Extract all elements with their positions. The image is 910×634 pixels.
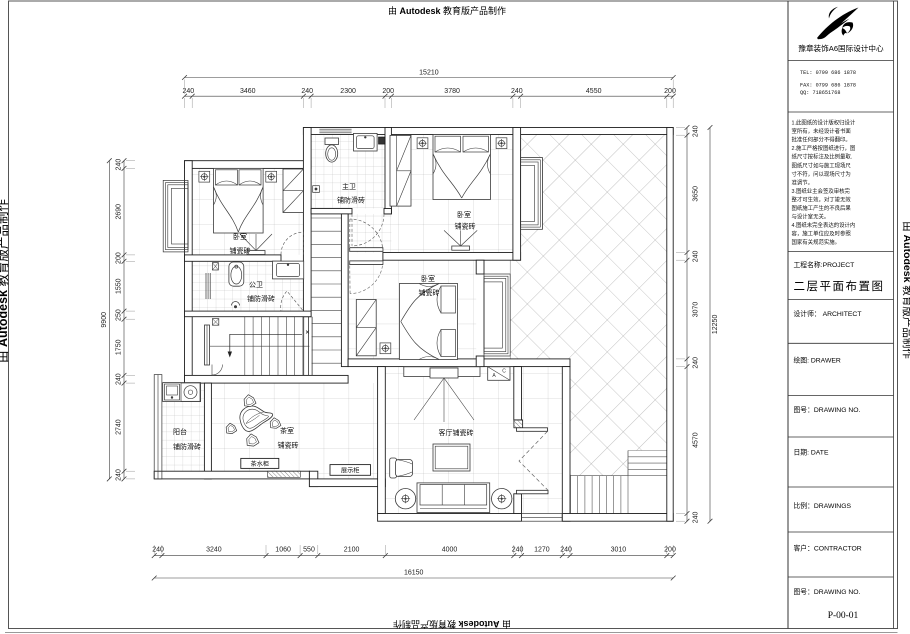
svg-text:阳台: 阳台	[173, 427, 187, 436]
svg-text:4000: 4000	[442, 547, 458, 554]
svg-text:铺瓷砖: 铺瓷砖	[230, 246, 251, 255]
svg-text:1060: 1060	[275, 547, 291, 554]
svg-text:240: 240	[693, 357, 700, 369]
svg-text:设计师： ARCHITECT: 设计师： ARCHITECT	[794, 309, 862, 318]
svg-text:1750: 1750	[116, 339, 123, 355]
svg-text:卧室: 卧室	[421, 274, 435, 283]
svg-text:P-00-01: P-00-01	[828, 611, 859, 621]
svg-text:容，施工单位应及时参照: 容，施工单位应及时参照	[792, 230, 852, 238]
svg-text:茶水柜: 茶水柜	[251, 460, 270, 468]
svg-text:铺瓷砖: 铺瓷砖	[419, 288, 440, 297]
svg-text:客户：CONTRACTOR: 客户：CONTRACTOR	[794, 544, 862, 553]
svg-text:由 Autodesk 教育版产品制作: 由 Autodesk 教育版产品制作	[0, 199, 10, 363]
svg-text:2740: 2740	[116, 419, 123, 435]
svg-text:C: C	[502, 369, 506, 375]
svg-text:工程名称:PROJECT: 工程名称:PROJECT	[794, 260, 855, 269]
svg-text:3240: 3240	[206, 547, 222, 554]
svg-text:图号：DRAWING NO.: 图号：DRAWING NO.	[794, 406, 861, 414]
svg-text:1550: 1550	[116, 278, 123, 294]
svg-text:2300: 2300	[340, 88, 356, 95]
svg-text:日期: DATE: 日期: DATE	[794, 449, 829, 457]
svg-text:1270: 1270	[534, 547, 550, 554]
svg-text:3070: 3070	[693, 302, 700, 318]
svg-text:客厅铺瓷砖: 客厅铺瓷砖	[439, 428, 474, 437]
svg-text:国家有关规范实施。: 国家有关规范实施。	[792, 238, 841, 246]
svg-text:2.施工严格按图纸进行，图: 2.施工严格按图纸进行，图	[792, 144, 856, 152]
svg-text:200: 200	[664, 88, 676, 95]
svg-text:3780: 3780	[444, 88, 460, 95]
svg-text:4.图纸未完全表达的设计内: 4.图纸未完全表达的设计内	[792, 221, 856, 229]
svg-text:240: 240	[512, 547, 524, 554]
svg-text:240: 240	[560, 547, 572, 554]
svg-text:铺瓷砖: 铺瓷砖	[455, 222, 476, 231]
svg-text:1.此图纸的设计版权归设计: 1.此图纸的设计版权归设计	[792, 119, 856, 127]
svg-text:准调节。: 准调节。	[792, 178, 814, 186]
svg-text:由 Autodesk 教育版产品制作: 由 Autodesk 教育版产品制作	[388, 5, 506, 16]
svg-text:TEL: 0799 686 1878: TEL: 0799 686 1878	[800, 70, 856, 76]
svg-text:12250: 12250	[712, 315, 719, 335]
svg-text:240: 240	[116, 373, 123, 385]
svg-text:9900: 9900	[101, 312, 108, 328]
svg-text:铺瓷砖: 铺瓷砖	[278, 441, 299, 450]
svg-text:240: 240	[152, 547, 164, 554]
svg-text:200: 200	[116, 252, 123, 264]
svg-text:240: 240	[693, 250, 700, 262]
svg-text:批准任何部分不得翻印。: 批准任何部分不得翻印。	[792, 136, 851, 144]
svg-text:豫章装饰A6国际设计中心: 豫章装饰A6国际设计中心	[798, 43, 884, 53]
svg-text:比例：DRAWINGS: 比例：DRAWINGS	[794, 501, 852, 510]
svg-text:2690: 2690	[116, 204, 123, 220]
svg-text:4550: 4550	[586, 88, 602, 95]
svg-text:240: 240	[301, 88, 313, 95]
svg-text:室所有，未经设计者书面: 室所有，未经设计者书面	[792, 127, 852, 135]
svg-text:2100: 2100	[344, 547, 360, 554]
svg-text:图号：DRAWING NO.: 图号：DRAWING NO.	[794, 588, 861, 596]
svg-text:绘图: DRAWER: 绘图: DRAWER	[794, 356, 841, 365]
svg-text:200: 200	[382, 88, 394, 95]
svg-text:3460: 3460	[240, 88, 256, 95]
svg-text:240: 240	[693, 125, 700, 137]
svg-text:250: 250	[116, 309, 123, 321]
svg-text:FAX: 0799 686 1878: FAX: 0799 686 1878	[800, 83, 856, 89]
svg-text:卧室: 卧室	[233, 232, 247, 241]
svg-text:3.图纸业主会签及审核完: 3.图纸业主会签及审核完	[792, 187, 851, 195]
svg-text:卧室: 卧室	[457, 210, 471, 219]
svg-text:240: 240	[116, 159, 123, 171]
svg-text:240: 240	[511, 88, 523, 95]
svg-text:整才可生效，对丁竣无效: 整才可生效，对丁竣无效	[792, 196, 852, 204]
svg-text:主卫: 主卫	[342, 182, 356, 191]
svg-text:4570: 4570	[693, 432, 700, 448]
svg-text:图纸尺寸如与施工现场尺: 图纸尺寸如与施工现场尺	[792, 161, 852, 169]
svg-text:3650: 3650	[693, 186, 700, 202]
svg-text:铺防滑砖: 铺防滑砖	[337, 196, 365, 205]
svg-text:由 Autodesk 教育版产品制作: 由 Autodesk 教育版产品制作	[393, 619, 511, 630]
svg-text:240: 240	[182, 88, 194, 95]
svg-text:展示柜: 展示柜	[341, 467, 360, 475]
svg-text:由 Autodesk 教育版产品制作: 由 Autodesk 教育版产品制作	[901, 221, 910, 359]
svg-text:200: 200	[664, 547, 676, 554]
svg-text:铺防滑砖: 铺防滑砖	[173, 442, 201, 451]
svg-text:公卫: 公卫	[249, 281, 263, 289]
svg-text:二层平面布置图: 二层平面布置图	[794, 280, 885, 293]
svg-text:茶室: 茶室	[280, 426, 294, 435]
svg-text:与设计室无关。: 与设计室无关。	[792, 213, 830, 221]
svg-text:图纸施工产生的不良后果: 图纸施工产生的不良后果	[792, 204, 852, 212]
svg-text:纸尺寸按标注及比例量取.: 纸尺寸按标注及比例量取.	[792, 153, 853, 161]
svg-text:15210: 15210	[419, 70, 439, 77]
svg-text:240: 240	[693, 511, 700, 523]
svg-text:铺防滑砖: 铺防滑砖	[247, 294, 275, 303]
svg-text:240: 240	[116, 469, 123, 481]
svg-text:16150: 16150	[404, 570, 424, 577]
svg-text:550: 550	[303, 547, 315, 554]
svg-text:QQ: 718651768: QQ: 718651768	[800, 90, 840, 96]
svg-text:3010: 3010	[611, 547, 627, 554]
svg-text:寸不符，问以现场尺寸为: 寸不符，问以现场尺寸为	[792, 170, 851, 178]
